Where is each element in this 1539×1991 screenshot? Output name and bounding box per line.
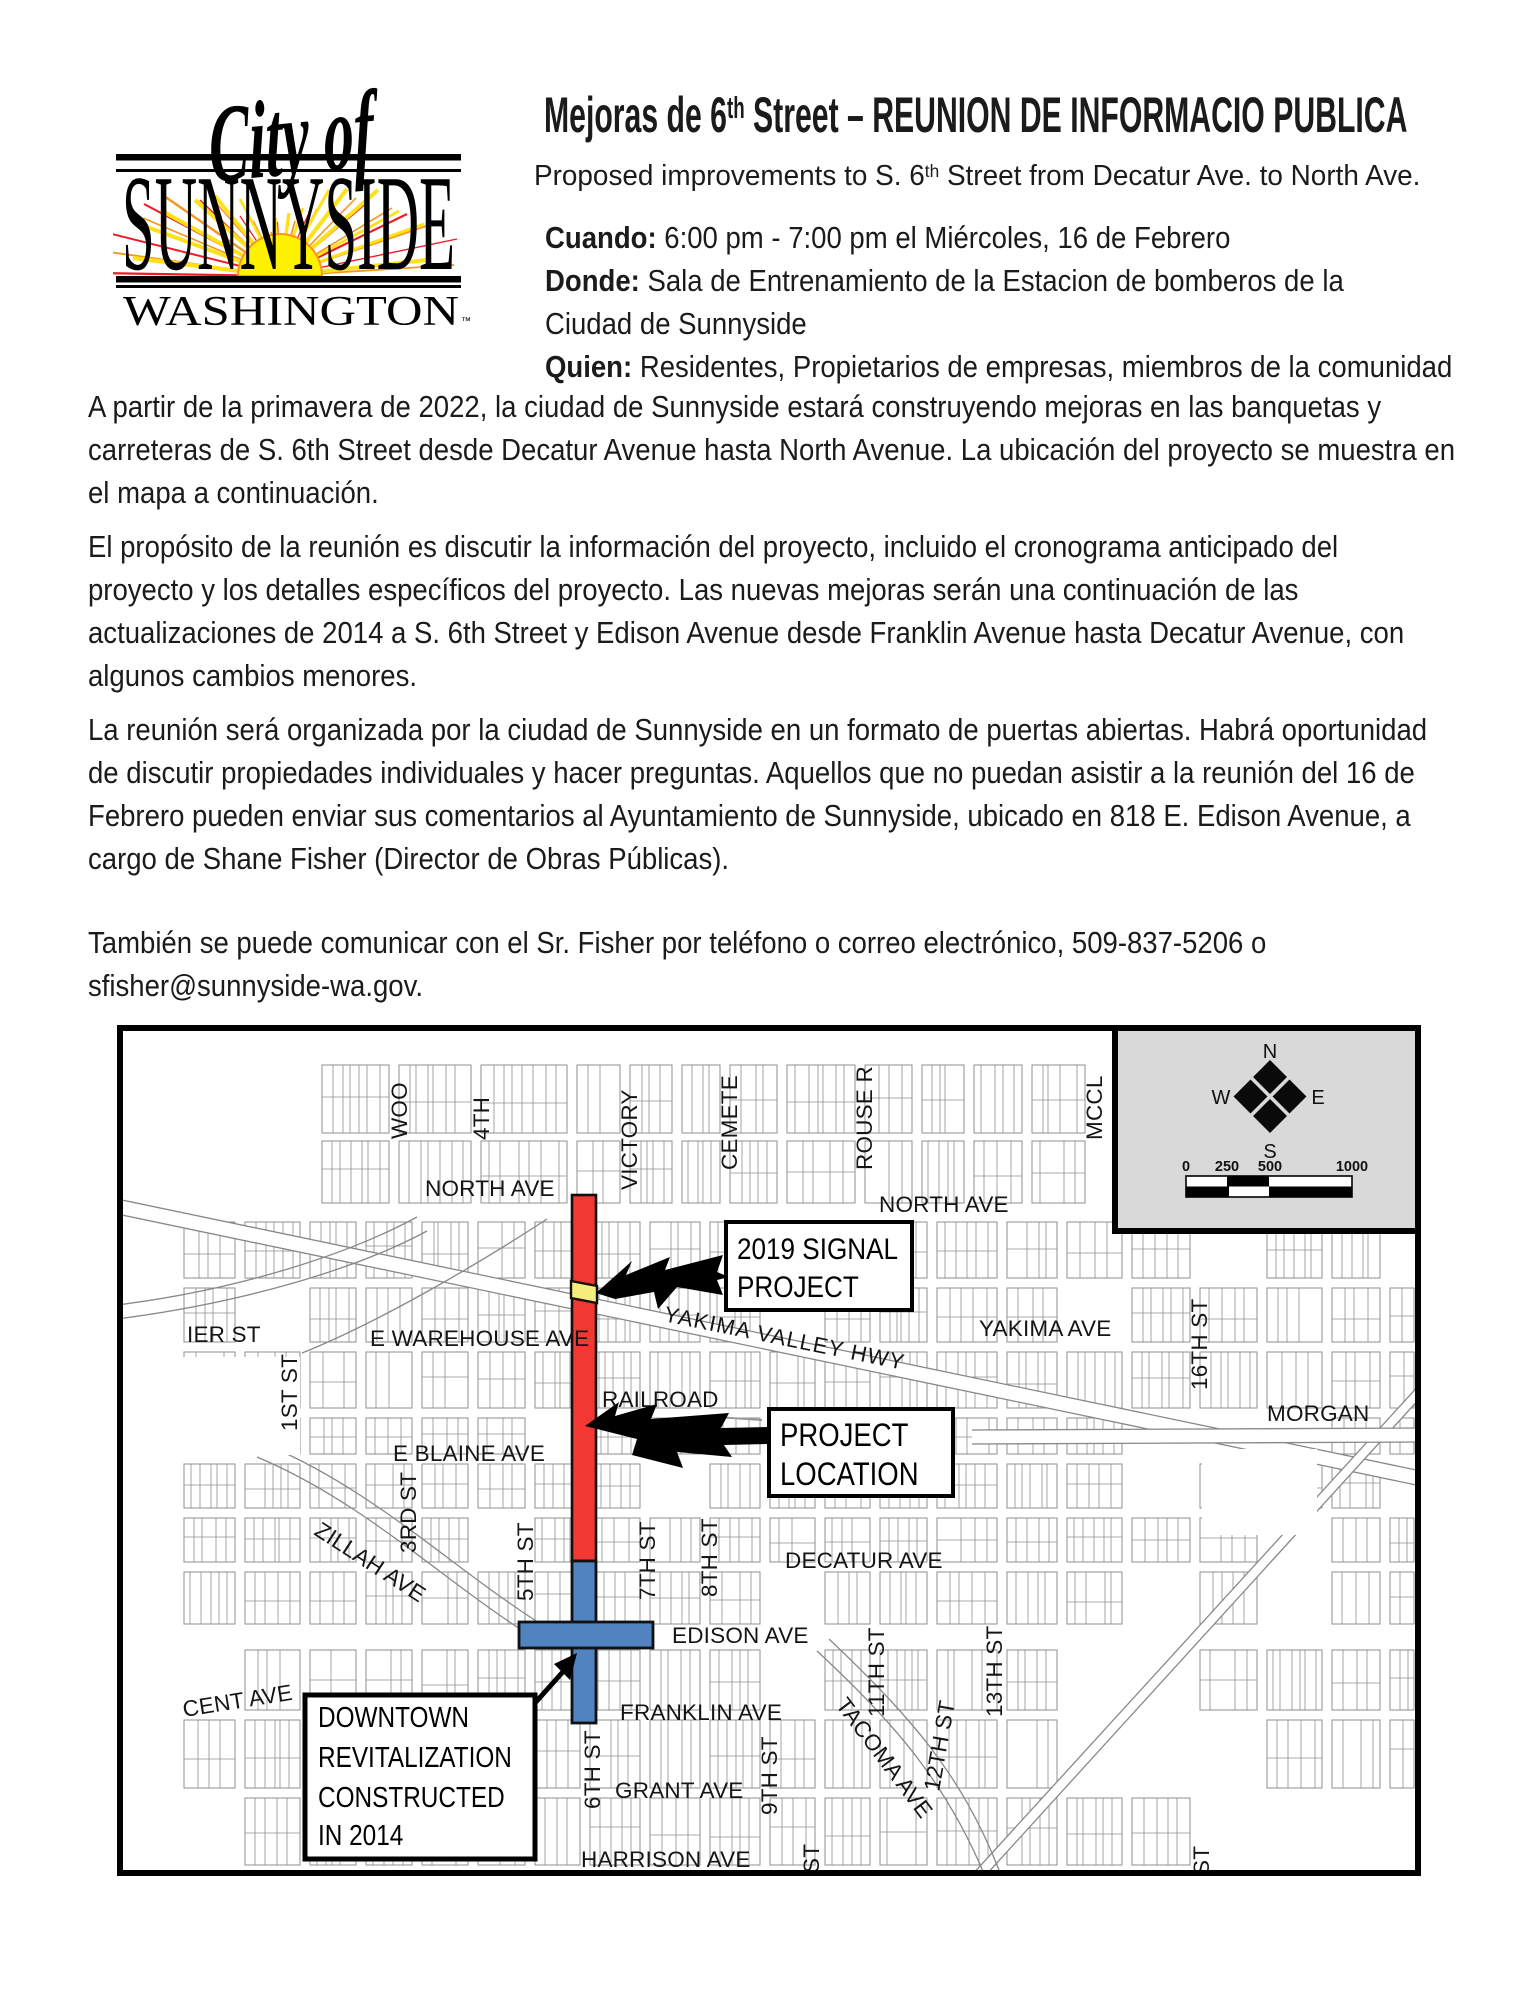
svg-text:CONSTRUCTED: CONSTRUCTED xyxy=(318,1781,505,1813)
svg-text:16TH ST: 16TH ST xyxy=(1187,1299,1212,1390)
svg-text:11TH ST: 11TH ST xyxy=(864,1627,889,1717)
svg-text:E WAREHOUSE AVE: E WAREHOUSE AVE xyxy=(370,1326,589,1351)
svg-text:6TH ST: 6TH ST xyxy=(580,1730,605,1809)
svg-text:ROUSE R: ROUSE R xyxy=(852,1066,877,1170)
svg-text:7TH ST: 7TH ST xyxy=(635,1521,660,1600)
svg-text:IN 2014: IN 2014 xyxy=(318,1819,403,1851)
svg-text:™: ™ xyxy=(461,316,471,327)
svg-text:LOCATION: LOCATION xyxy=(780,1457,919,1492)
svg-text:NORTH AVE: NORTH AVE xyxy=(879,1192,1009,1217)
svg-text:PROJECT: PROJECT xyxy=(737,1270,859,1303)
svg-text:HARRISON AVE: HARRISON AVE xyxy=(581,1847,751,1872)
svg-text:WOO: WOO xyxy=(387,1082,412,1139)
svg-text:YAKIMA AVE: YAKIMA AVE xyxy=(979,1316,1111,1341)
svg-text:WASHINGTON: WASHINGTON xyxy=(123,289,459,335)
svg-text:DECATUR AVE: DECATUR AVE xyxy=(785,1548,943,1573)
svg-text:FRANKLIN AVE: FRANKLIN AVE xyxy=(620,1700,782,1725)
svg-text:VICTORY: VICTORY xyxy=(617,1089,642,1190)
svg-text:SUNNYSIDE: SUNNYSIDE xyxy=(122,147,455,299)
svg-text:250: 250 xyxy=(1215,1159,1239,1175)
svg-text:9TH ST: 9TH ST xyxy=(757,1736,782,1815)
svg-text:1000: 1000 xyxy=(1336,1159,1368,1175)
svg-text:REVITALIZATION: REVITALIZATION xyxy=(318,1741,512,1773)
svg-text:E: E xyxy=(1311,1087,1324,1109)
svg-text:IER ST: IER ST xyxy=(187,1322,261,1347)
svg-text:3RD ST: 3RD ST xyxy=(396,1472,421,1553)
svg-text:500: 500 xyxy=(1258,1159,1282,1175)
svg-text:RAILROAD: RAILROAD xyxy=(602,1387,719,1412)
svg-text:1ST ST: 1ST ST xyxy=(277,1354,302,1431)
svg-text:EDISON AVE: EDISON AVE xyxy=(672,1623,809,1648)
svg-text:E BLAINE AVE: E BLAINE AVE xyxy=(393,1441,545,1466)
svg-text:DOWNTOWN: DOWNTOWN xyxy=(318,1701,469,1733)
svg-text:MCCL: MCCL xyxy=(1082,1075,1107,1140)
svg-text:PROJECT: PROJECT xyxy=(780,1418,908,1453)
svg-text:GRANT AVE: GRANT AVE xyxy=(615,1778,744,1803)
svg-text:ST: ST xyxy=(799,1844,824,1873)
svg-text:8TH ST: 8TH ST xyxy=(697,1518,722,1597)
svg-text:13TH ST: 13TH ST xyxy=(982,1626,1007,1717)
svg-text:W: W xyxy=(1212,1087,1231,1109)
svg-text:N: N xyxy=(1263,1041,1277,1063)
svg-text:2019 SIGNAL: 2019 SIGNAL xyxy=(737,1232,898,1265)
svg-text:4TH: 4TH xyxy=(469,1097,494,1140)
svg-text:CEMETE: CEMETE xyxy=(717,1075,742,1170)
svg-text:5TH ST: 5TH ST xyxy=(513,1522,538,1601)
svg-text:NORTH AVE: NORTH AVE xyxy=(425,1176,555,1201)
svg-text:0: 0 xyxy=(1182,1159,1190,1175)
svg-text:MORGAN: MORGAN xyxy=(1267,1401,1369,1426)
